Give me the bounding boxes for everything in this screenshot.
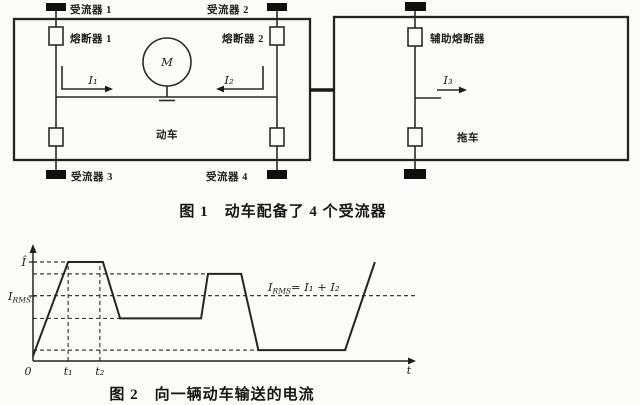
fuse1-label: 熔断器 1 [70, 32, 112, 45]
fuse-4-symbol [270, 128, 284, 146]
current-i1-arrow [62, 66, 107, 89]
trailer-fuse-symbol [408, 128, 422, 146]
fuse2-label: 熔断器 2 [222, 32, 264, 45]
figure2-current-chart: t₁t₂ Î IRMS 0 t IRMS= I₁ + I₂ [0, 242, 640, 392]
current-i2-arrowhead-icon [216, 86, 224, 93]
fuse-1-symbol [49, 27, 63, 45]
pantograph-2-icon [267, 3, 287, 11]
fuse-3-symbol [49, 128, 63, 146]
collector2-label: 受流器 2 [207, 3, 249, 16]
pantograph-aux-top-icon [405, 2, 426, 11]
figure2-caption: 图 2向一辆动车输送的电流 [0, 383, 424, 404]
motor-label: M [160, 55, 174, 69]
collector3-label: 受流器 3 [71, 170, 113, 183]
trailer-label: 拖车 [457, 131, 479, 144]
pantograph-3-icon [46, 170, 66, 179]
current-i3-label: I₃ [442, 73, 453, 87]
figure2-number: 图 2 [109, 387, 138, 403]
figure2-caption-text: 向一辆动车输送的电流 [155, 387, 315, 403]
y-axis-arrowhead-icon [30, 244, 37, 253]
fuse-2-symbol [270, 27, 284, 45]
figure1-caption-text: 动车配备了 4 个受流器 [225, 204, 387, 220]
current-waveform [33, 262, 375, 356]
figure1-train-diagram: M I₁ I₂ I₃ 受流器 1 受流器 2 熔断器 1 熔断器 2 辅助熔断器… [0, 0, 640, 196]
aux-fuse-label: 辅助熔断器 [430, 32, 485, 45]
figure1-number: 图 1 [179, 204, 208, 220]
current-i1-label: I₁ [87, 73, 97, 87]
current-i2-label: I₂ [223, 73, 234, 87]
x-label-time: t [407, 364, 412, 377]
figure1-caption: 图 1动车配备了 4 个受流器 [0, 200, 566, 221]
x-label-origin: 0 [25, 365, 32, 378]
rms-formula-annotation: IRMS= I₁ + I₂ [267, 280, 340, 296]
pantograph-aux-bottom-icon [404, 169, 426, 179]
collector4-label: 受流器 4 [206, 170, 248, 183]
x-tick-label: t₁ [64, 365, 73, 378]
y-label-rms: IRMS [7, 289, 31, 305]
y-label-peak: Î [20, 255, 27, 269]
collector1-label: 受流器 1 [70, 3, 112, 16]
current-i1-arrowhead-icon [105, 86, 113, 93]
motor-car-label: 动车 [156, 128, 178, 141]
x-tick-label: t₂ [95, 365, 104, 378]
pantograph-4-icon [267, 170, 287, 179]
scanned-paper-page: M I₁ I₂ I₃ 受流器 1 受流器 2 熔断器 1 熔断器 2 辅助熔断器… [0, 0, 640, 405]
current-i3-arrowhead-icon [459, 87, 467, 94]
pantograph-1-icon [46, 3, 66, 11]
aux-fuse-symbol [408, 28, 422, 46]
